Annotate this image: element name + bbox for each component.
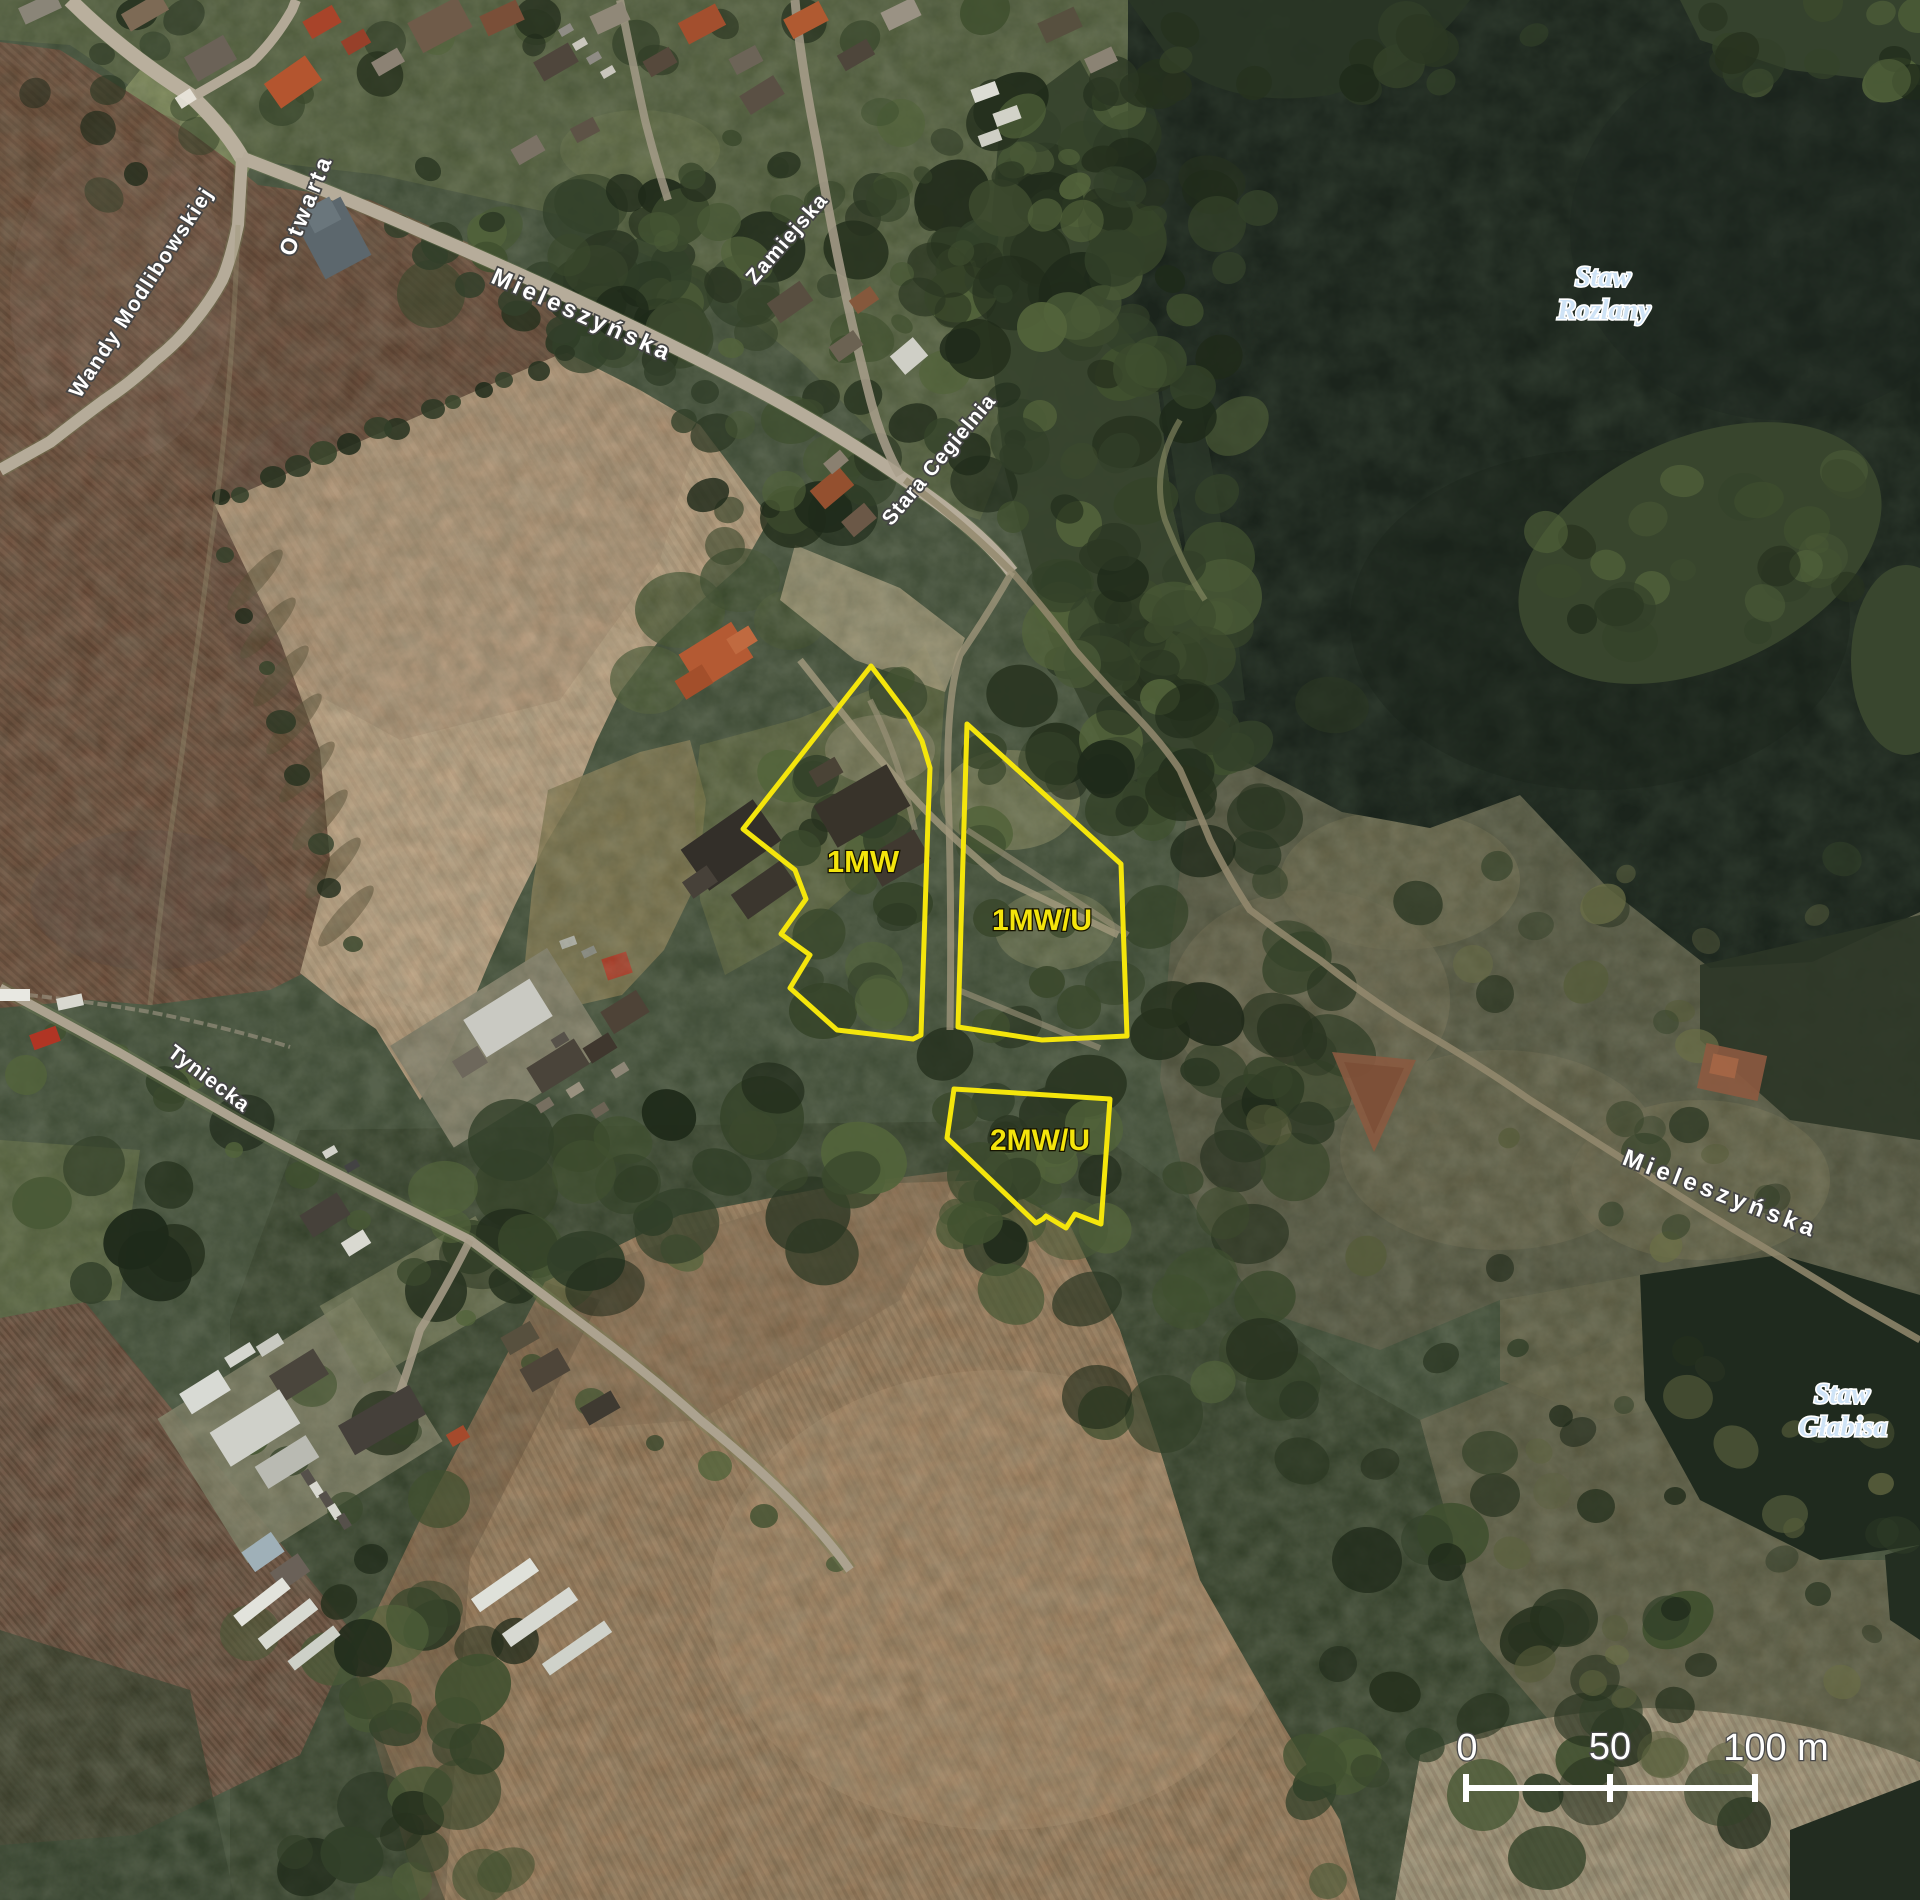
svg-text:2MW/U: 2MW/U xyxy=(990,1124,1090,1157)
svg-text:Rozlany: Rozlany xyxy=(1556,295,1651,326)
svg-text:50: 50 xyxy=(1589,1726,1631,1768)
svg-text:1MW: 1MW xyxy=(827,844,900,879)
svg-text:0: 0 xyxy=(1456,1727,1477,1769)
svg-text:Staw: Staw xyxy=(1814,1379,1870,1410)
svg-text:Głabisa: Głabisa xyxy=(1799,1412,1888,1443)
svg-text:100 m: 100 m xyxy=(1723,1727,1829,1769)
svg-text:Staw: Staw xyxy=(1575,262,1631,293)
svg-text:1MW/U: 1MW/U xyxy=(992,904,1092,937)
